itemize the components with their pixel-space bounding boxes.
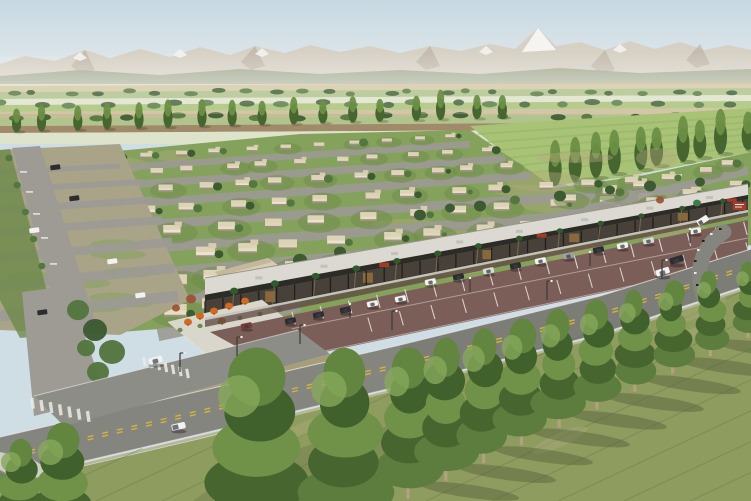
house-roof <box>272 198 287 202</box>
yard-tree <box>220 148 227 154</box>
house-shadow <box>442 154 452 156</box>
house-shadow <box>327 244 345 246</box>
yard-tree <box>404 171 412 178</box>
house-wing <box>691 187 696 190</box>
house-roof <box>540 182 553 186</box>
house-roof <box>337 157 348 160</box>
house-shadow <box>255 166 267 168</box>
house-wing <box>488 221 495 226</box>
backdrop-poplar <box>104 102 111 118</box>
house-shadow <box>231 207 246 209</box>
ornamental-tree <box>656 196 664 203</box>
storefront-glow <box>482 250 492 259</box>
house-wing <box>254 145 258 148</box>
house-shadow <box>384 240 401 242</box>
yard-tree <box>502 185 511 193</box>
house-wing <box>468 163 473 166</box>
palm-tree <box>638 213 644 218</box>
house-shadow <box>164 315 186 317</box>
crosswalk-dash <box>26 191 33 193</box>
house-roof <box>382 138 392 140</box>
house-shadow <box>180 170 192 172</box>
light-head <box>183 352 186 354</box>
house-wing <box>216 147 221 150</box>
house-shadow <box>200 188 214 190</box>
house-shadow <box>140 156 151 158</box>
house-wing <box>262 159 267 162</box>
parkway-tree <box>14 182 21 189</box>
house-shadow <box>294 163 305 165</box>
house-roof <box>391 170 404 173</box>
house-shadow <box>460 170 472 172</box>
house-roof <box>268 177 281 181</box>
aerial-community-rendering <box>0 0 751 501</box>
house-shadow <box>540 188 553 190</box>
tree-highlight <box>541 324 560 347</box>
hvac-unit <box>255 276 262 279</box>
tree-highlight <box>619 303 636 323</box>
sign-text <box>735 207 742 208</box>
house-shadow <box>159 190 173 192</box>
house-shadow <box>432 172 444 174</box>
storefront-glow <box>678 213 688 221</box>
palm-tree <box>393 258 400 264</box>
depth-haze <box>0 84 751 114</box>
house-roof <box>494 203 509 207</box>
house-wing <box>250 240 258 245</box>
house-shadow <box>196 255 215 257</box>
palm-tree <box>434 251 441 257</box>
house-roof <box>151 168 163 171</box>
table <box>199 318 201 320</box>
backdrop-poplar <box>349 96 356 112</box>
house-shadow <box>700 172 712 174</box>
house-shadow <box>176 154 187 156</box>
house-roof <box>308 215 324 220</box>
backdrop-poplar <box>319 100 326 114</box>
house-shadow <box>337 161 348 163</box>
tree-highlight <box>311 371 347 407</box>
back-tree <box>695 178 705 187</box>
table <box>213 313 215 315</box>
tree-highlight <box>502 335 523 360</box>
yard-tree <box>187 150 195 157</box>
house-shadow <box>391 175 404 177</box>
curb-marking <box>719 228 722 230</box>
hvac-unit <box>456 241 463 244</box>
yard-tree <box>286 199 294 207</box>
light-head <box>395 310 398 312</box>
farm-tree <box>551 114 566 120</box>
yard-tree <box>426 211 434 218</box>
house-shadow <box>722 165 733 167</box>
house-roof <box>314 143 324 146</box>
crosswalk-dash <box>33 213 40 215</box>
house-wing <box>375 190 381 194</box>
hvac-unit <box>581 218 588 221</box>
farm-tree <box>120 114 133 120</box>
backdrop-poplar <box>413 96 420 111</box>
tree-highlight <box>736 271 749 286</box>
palm-tree <box>271 280 279 286</box>
palm-tree <box>312 273 320 279</box>
parkway-tree <box>30 236 37 243</box>
poplar-tree <box>652 127 662 150</box>
tree-highlight <box>580 314 598 336</box>
hvac-unit <box>516 230 523 233</box>
yard-tree <box>594 180 602 188</box>
ornamental-tree <box>172 304 180 311</box>
backdrop-poplar <box>473 95 480 110</box>
light-head <box>303 324 306 326</box>
yard-tree <box>345 239 353 246</box>
house-wing <box>434 225 441 230</box>
house-wing <box>421 206 428 210</box>
house-roof <box>722 160 733 163</box>
median-tree <box>67 300 89 320</box>
house-shadow <box>500 167 512 169</box>
house-roof <box>180 166 192 169</box>
back-tree <box>445 204 455 213</box>
palm-tree <box>679 206 685 211</box>
tree-highlight <box>423 356 447 384</box>
house-shadow <box>452 193 466 195</box>
median-tree <box>77 340 95 357</box>
back-tree <box>510 196 520 205</box>
house-wing <box>175 222 182 227</box>
light-head <box>550 280 553 282</box>
house-shadow <box>450 212 466 214</box>
house-shadow <box>488 190 502 192</box>
light-head <box>689 228 691 230</box>
plaza-shrub <box>197 324 202 328</box>
house-shadow <box>366 158 377 160</box>
yard-tree <box>213 182 222 190</box>
house-shadow <box>355 177 368 179</box>
yard-tree <box>156 208 163 214</box>
poplar-tree <box>695 120 705 142</box>
yard-tree <box>193 204 202 212</box>
palm-tree <box>475 243 482 249</box>
tree-highlight <box>1 452 21 472</box>
yard-tree <box>402 235 410 242</box>
house-shadow <box>279 247 297 249</box>
retail-accent <box>727 198 737 201</box>
yard-tree <box>324 175 333 183</box>
hvac-unit <box>391 252 398 255</box>
backdrop-poplar <box>135 102 142 118</box>
house-roof <box>442 150 452 153</box>
yard-tree <box>674 175 682 182</box>
house-shadow <box>662 179 674 181</box>
light-head <box>589 251 591 253</box>
palm-tree <box>516 236 523 241</box>
back-tree <box>644 181 656 192</box>
palm-tree <box>720 198 726 202</box>
poplar-tree <box>678 116 688 143</box>
backdrop-poplar <box>437 90 444 108</box>
curb-marking <box>694 260 697 262</box>
farm-tree <box>89 115 104 121</box>
median-tree <box>83 319 107 341</box>
backdrop-poplar <box>38 104 45 121</box>
house-roof <box>432 168 444 171</box>
house-wing <box>670 172 675 175</box>
table <box>187 324 189 326</box>
palm-tree <box>230 288 238 295</box>
hvac-unit <box>706 196 713 199</box>
yard-tree <box>359 139 368 147</box>
retail-accent <box>537 234 547 238</box>
house-wing <box>320 173 326 176</box>
house-wing <box>244 177 250 181</box>
light-head <box>240 336 243 338</box>
house-shadow <box>151 173 163 175</box>
plaza-shrub <box>177 328 182 332</box>
yard-tree <box>152 152 159 159</box>
house-wing <box>497 182 503 186</box>
crosswalk-dash <box>20 171 27 173</box>
yard-tree <box>446 169 451 174</box>
house-roof <box>366 154 377 157</box>
house-wing <box>148 151 153 154</box>
yard-tree <box>367 173 375 180</box>
house-roof <box>218 222 235 227</box>
house-roof <box>408 152 419 155</box>
house-roof <box>200 182 214 186</box>
house-shadow <box>163 233 180 235</box>
house-shadow <box>382 141 392 143</box>
parkway-tree <box>5 155 12 162</box>
light-head <box>665 259 668 261</box>
curb-marking <box>694 272 697 274</box>
house-shadow <box>238 251 257 253</box>
house-shadow <box>272 204 287 206</box>
house-roof <box>360 212 376 216</box>
backdrop-poplar <box>164 99 171 116</box>
back-tree <box>605 186 615 195</box>
yard-tree <box>492 146 501 154</box>
poplar-tree <box>636 127 646 152</box>
curb-marking <box>697 249 700 251</box>
house-shadow <box>218 229 235 231</box>
table <box>228 308 230 310</box>
house-roof <box>179 203 194 207</box>
scene-svg <box>0 0 751 501</box>
house-wing <box>451 133 455 135</box>
backdrop-poplar <box>74 105 81 120</box>
light-head <box>349 303 351 305</box>
palm-tree <box>557 228 563 233</box>
house-shadow <box>562 200 576 202</box>
house-roof <box>265 219 282 224</box>
back-tree <box>554 191 566 202</box>
house-shadow <box>227 168 239 170</box>
house-wing <box>302 157 307 160</box>
poplar-tree <box>609 130 619 156</box>
house-shadow <box>281 148 291 150</box>
house-shadow <box>445 137 454 139</box>
lawn-patch <box>636 148 677 167</box>
back-tree <box>474 201 486 212</box>
yard-tree <box>235 224 244 232</box>
house-roof <box>327 236 345 241</box>
hvac-unit <box>646 207 653 210</box>
yard-tree <box>249 180 258 188</box>
house-roof <box>452 187 466 191</box>
house-wing <box>235 161 240 164</box>
house-shadow <box>415 139 425 141</box>
monument-sign <box>733 202 746 210</box>
house-shadow <box>482 151 492 153</box>
house-shadow <box>494 209 509 211</box>
sign-text <box>735 204 744 205</box>
backdrop-poplar <box>499 95 506 109</box>
yard-tree <box>733 160 742 168</box>
crosswalk-bar <box>142 356 147 366</box>
back-tree <box>414 210 426 221</box>
backdrop-poplar <box>198 99 205 116</box>
house-wing <box>208 243 216 248</box>
poplar-tree <box>716 109 726 136</box>
house-wing <box>633 174 638 178</box>
house-shadow <box>314 146 324 148</box>
house-roof <box>581 179 594 183</box>
tree-highlight <box>218 375 260 417</box>
house-roof <box>415 136 425 138</box>
backdrop-poplar <box>258 101 265 116</box>
yard-tree <box>456 134 461 139</box>
house-shadow <box>408 156 419 158</box>
tree-highlight <box>697 282 711 299</box>
curb-marking <box>710 233 713 235</box>
palm-tree <box>598 221 604 226</box>
house-shadow <box>247 150 258 152</box>
palm-tree <box>353 265 361 271</box>
tree-highlight <box>384 367 409 397</box>
tree-highlight <box>38 439 64 465</box>
house-shadow <box>366 199 380 201</box>
parkway-tree <box>22 209 29 216</box>
house-wing <box>396 229 403 234</box>
yard-tree <box>215 250 224 258</box>
parkway-tree <box>38 263 45 270</box>
tree-highlight <box>658 292 673 310</box>
house-roof <box>349 141 359 144</box>
house-wing <box>489 146 493 149</box>
house-wing <box>642 178 647 182</box>
house-shadow <box>581 185 594 187</box>
crosswalk-dash <box>50 263 57 265</box>
house-shadow <box>349 144 359 146</box>
house-roof <box>730 181 742 184</box>
tree-highlight <box>463 346 485 372</box>
house-roof <box>279 239 297 244</box>
backdrop-poplar <box>229 100 236 116</box>
backdrop-poplar <box>290 97 297 114</box>
crosswalk-dash <box>41 237 48 239</box>
house-shadow <box>308 223 324 225</box>
house-shadow <box>360 219 376 221</box>
house-shadow <box>265 226 282 228</box>
green-umbrella <box>693 200 701 207</box>
house-wing <box>363 170 368 173</box>
house-wing <box>409 187 415 191</box>
yard-tree <box>414 191 422 198</box>
house-shadow <box>236 185 250 187</box>
house-shadow <box>311 180 324 182</box>
house-roof <box>231 200 246 204</box>
house-shadow <box>312 201 326 203</box>
house-roof <box>176 151 187 154</box>
yard-tree <box>615 188 624 196</box>
house-roof <box>159 185 173 189</box>
backdrop-poplar <box>13 108 20 122</box>
house-roof <box>700 167 712 170</box>
yard-tree <box>467 190 472 195</box>
house-roof <box>312 195 326 199</box>
yard-tree <box>246 202 255 210</box>
lawn-patch <box>154 150 193 161</box>
house-shadow <box>208 152 219 154</box>
curb-marking <box>702 240 705 242</box>
light-head <box>469 277 471 279</box>
retail-accent <box>379 263 389 268</box>
lawn-patch <box>536 152 613 163</box>
house-shadow <box>400 196 414 198</box>
storefront-glow <box>569 234 579 243</box>
house-roof <box>281 145 291 148</box>
house-shadow <box>268 183 281 185</box>
hvac-unit <box>320 265 327 268</box>
storefront-glow <box>363 273 373 283</box>
backdrop-poplar <box>376 99 383 113</box>
median-tree <box>99 340 125 364</box>
house-wing <box>508 161 513 164</box>
ornamental-tree <box>186 295 196 304</box>
table <box>244 303 246 305</box>
house-shadow <box>179 209 194 211</box>
